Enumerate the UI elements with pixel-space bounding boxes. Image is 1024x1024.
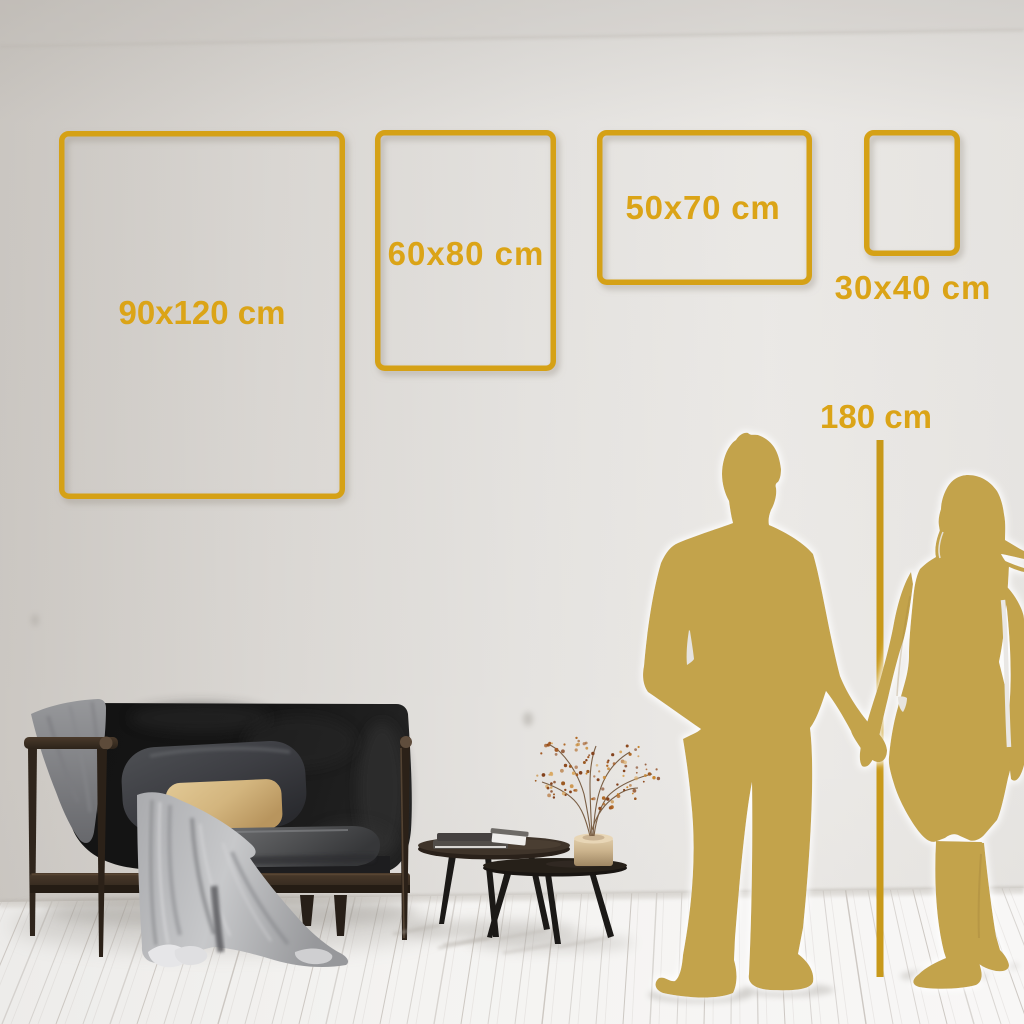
svg-text:60x80 cm: 60x80 cm (388, 235, 545, 272)
svg-text:180 cm: 180 cm (820, 398, 932, 435)
svg-text:90x120 cm: 90x120 cm (119, 294, 286, 331)
svg-text:30x40 cm: 30x40 cm (835, 269, 992, 306)
svg-text:50x70 cm: 50x70 cm (625, 189, 780, 226)
